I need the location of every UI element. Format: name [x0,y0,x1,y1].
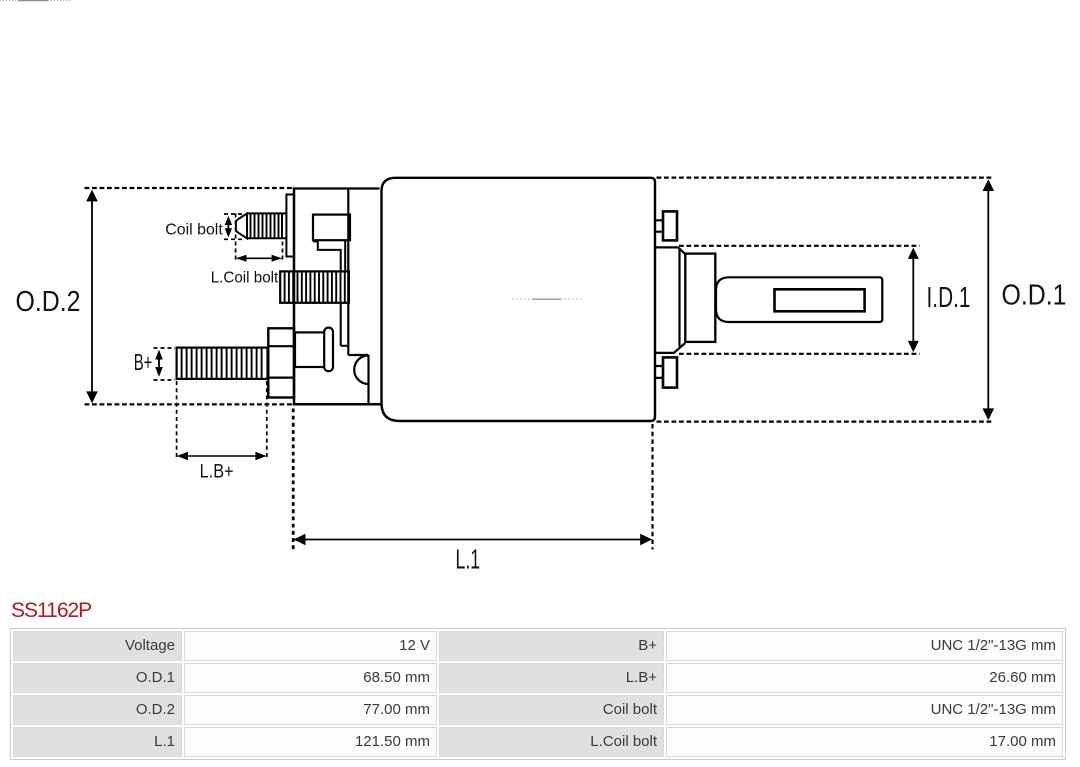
svg-text:L.Coil bolt: L.Coil bolt [211,269,279,286]
svg-text:B+: B+ [134,349,153,375]
svg-text:L.1: L.1 [456,544,481,575]
svg-text:Coil bolt: Coil bolt [165,221,223,238]
svg-text:L.B+: L.B+ [200,462,234,483]
svg-text:I.D.1: I.D.1 [927,282,971,314]
svg-text:O.D.2: O.D.2 [16,286,81,318]
svg-text:O.D.1: O.D.1 [1002,280,1067,312]
